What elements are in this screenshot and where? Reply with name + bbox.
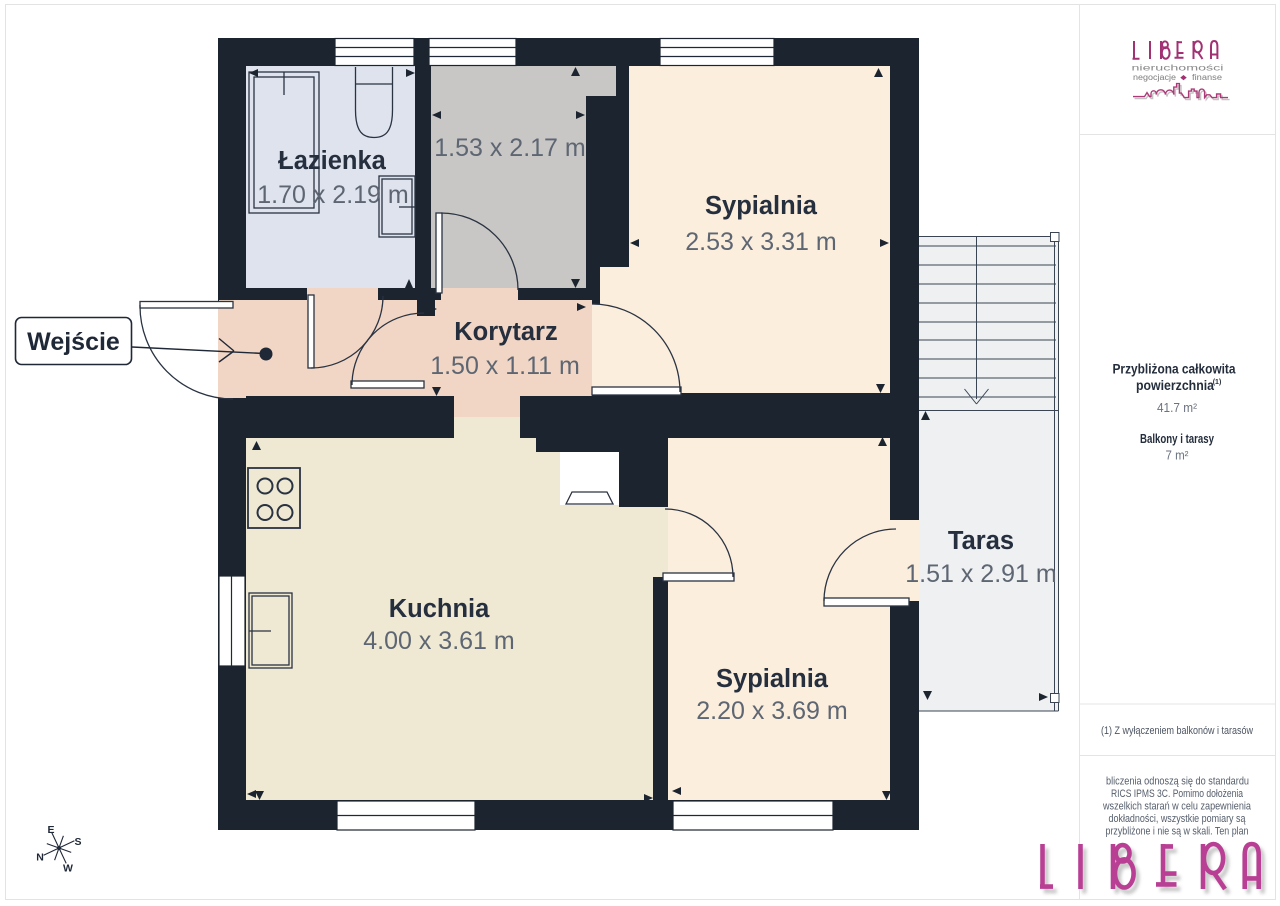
svg-text:Łazienka: Łazienka bbox=[278, 147, 387, 175]
svg-text:Korytarz: Korytarz bbox=[454, 318, 557, 346]
svg-text:Sypialnia: Sypialnia bbox=[716, 665, 829, 693]
svg-text:(1) Z wyłączeniem balkonów i t: (1) Z wyłączeniem balkonów i tarasów bbox=[1101, 725, 1253, 737]
svg-text:bliczenia odnoszą się do stand: bliczenia odnoszą się do standardu bbox=[1106, 776, 1249, 788]
svg-text:Sypialnia: Sypialnia bbox=[705, 192, 818, 220]
svg-text:Wejście: Wejście bbox=[27, 328, 120, 356]
svg-text:dokładności, wszystkie pomiary: dokładności, wszystkie pomiary są bbox=[1109, 813, 1247, 825]
svg-text:7 m²: 7 m² bbox=[1166, 448, 1190, 463]
svg-text:N: N bbox=[36, 852, 44, 864]
svg-text:(1): (1) bbox=[1213, 379, 1222, 386]
svg-text:RICS IPMS 3C. Pomimo dołożenia: RICS IPMS 3C. Pomimo dołożenia bbox=[1111, 788, 1244, 800]
svg-text:Kuchnia: Kuchnia bbox=[389, 595, 490, 623]
svg-text:41.7 m²: 41.7 m² bbox=[1157, 400, 1198, 415]
svg-text:1.70 x 2.19 m: 1.70 x 2.19 m bbox=[257, 181, 408, 209]
svg-text:2.20 x 3.69 m: 2.20 x 3.69 m bbox=[696, 697, 847, 725]
svg-text:powierzchnia: powierzchnia bbox=[1136, 378, 1214, 393]
svg-text:przybliżone i nie są w skali.: przybliżone i nie są w skali. Ten plan bbox=[1106, 826, 1249, 838]
svg-text:W: W bbox=[63, 863, 73, 875]
svg-text:1.53 x 2.17 m: 1.53 x 2.17 m bbox=[434, 134, 585, 162]
svg-text:Balkony i tarasy: Balkony i tarasy bbox=[1140, 431, 1215, 446]
svg-text:1.50 x 1.11 m: 1.50 x 1.11 m bbox=[430, 352, 580, 380]
svg-text:S: S bbox=[74, 836, 81, 848]
svg-text:1.51 x 2.91 m: 1.51 x 2.91 m bbox=[905, 560, 1056, 588]
svg-text:Przybliżona całkowita: Przybliżona całkowita bbox=[1113, 362, 1236, 377]
svg-text:Taras: Taras bbox=[948, 527, 1014, 555]
svg-text:finanse: finanse bbox=[1192, 73, 1223, 82]
svg-text:2.53 x 3.31 m: 2.53 x 3.31 m bbox=[685, 228, 836, 256]
svg-text:4.00 x 3.61 m: 4.00 x 3.61 m bbox=[363, 627, 514, 655]
svg-text:wszelkich starań w celu zapewn: wszelkich starań w celu zapewnienia bbox=[1102, 801, 1252, 813]
svg-text:negocjacje: negocjacje bbox=[1133, 73, 1177, 82]
svg-text:nieruchomości: nieruchomości bbox=[1132, 63, 1224, 73]
svg-text:E: E bbox=[47, 824, 54, 836]
